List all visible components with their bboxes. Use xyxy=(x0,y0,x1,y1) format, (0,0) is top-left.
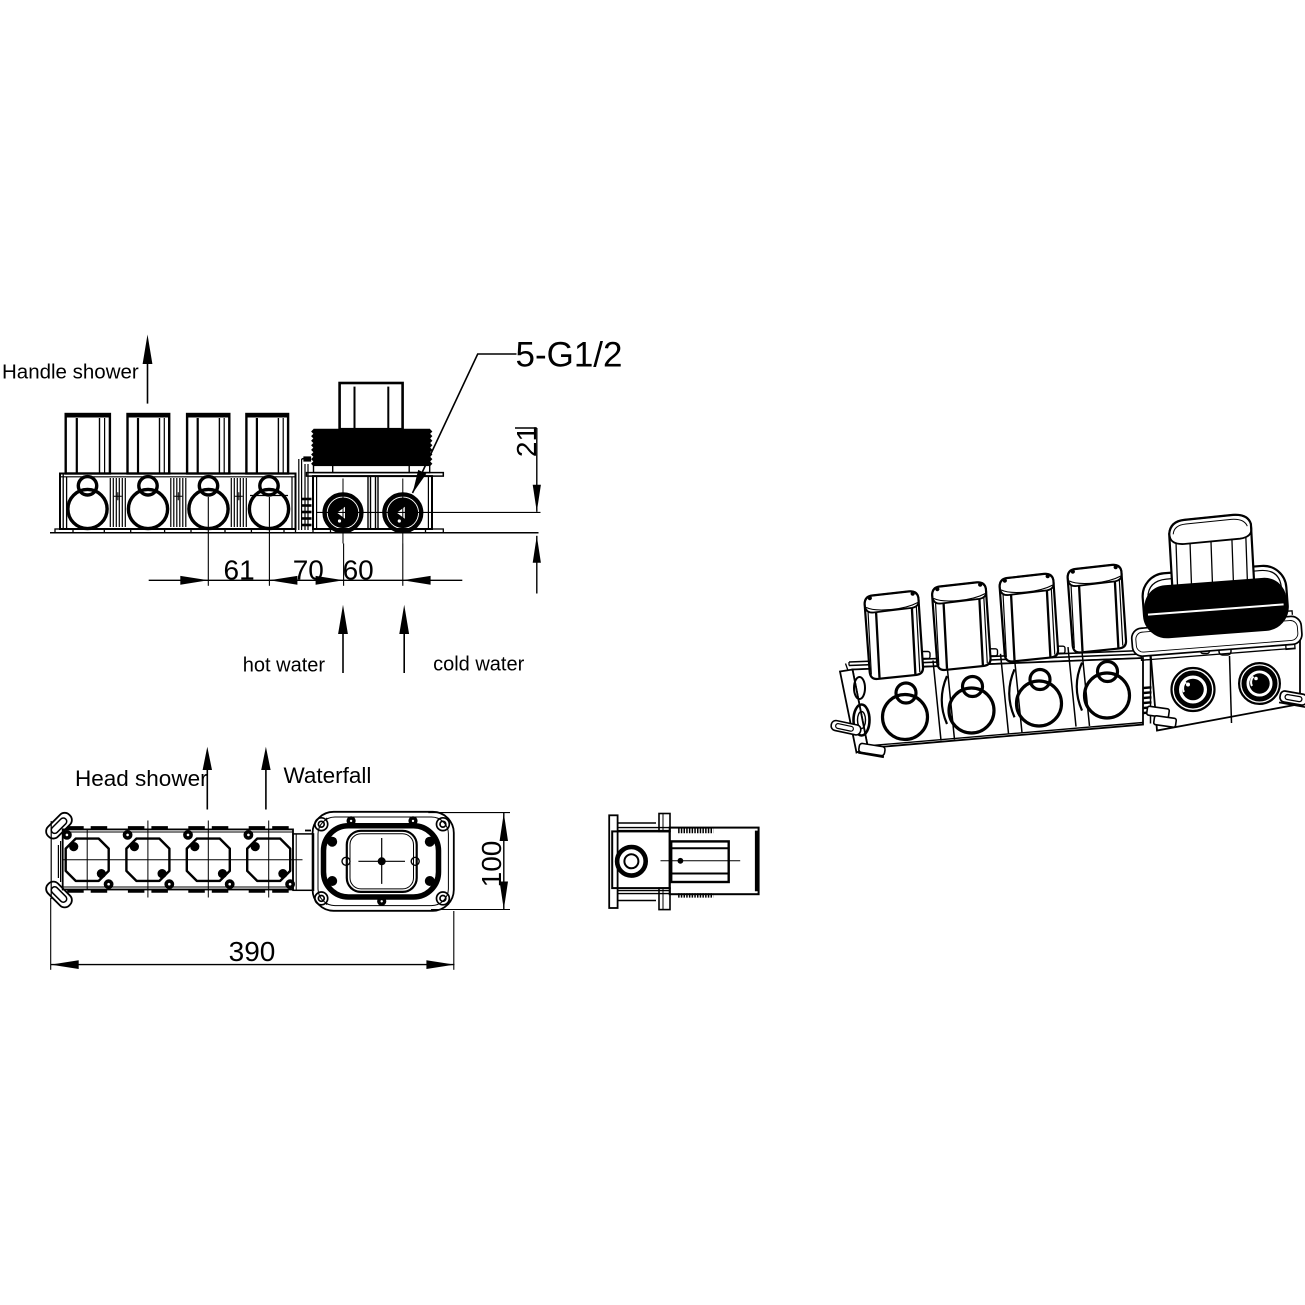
svg-text:5-G1/2: 5-G1/2 xyxy=(516,336,623,375)
svg-text:100: 100 xyxy=(476,841,507,888)
svg-text:61: 61 xyxy=(224,555,255,586)
svg-text:21: 21 xyxy=(511,426,542,457)
svg-text:390: 390 xyxy=(229,936,276,967)
svg-text:Handle shower: Handle shower xyxy=(2,361,139,384)
svg-text:Waterfall: Waterfall xyxy=(284,763,372,788)
svg-text:cold water: cold water xyxy=(433,654,524,676)
svg-text:70: 70 xyxy=(293,555,324,586)
svg-text:Head shower: Head shower xyxy=(75,766,208,791)
svg-text:60: 60 xyxy=(343,555,374,586)
svg-text:hot water: hot water xyxy=(243,655,326,677)
